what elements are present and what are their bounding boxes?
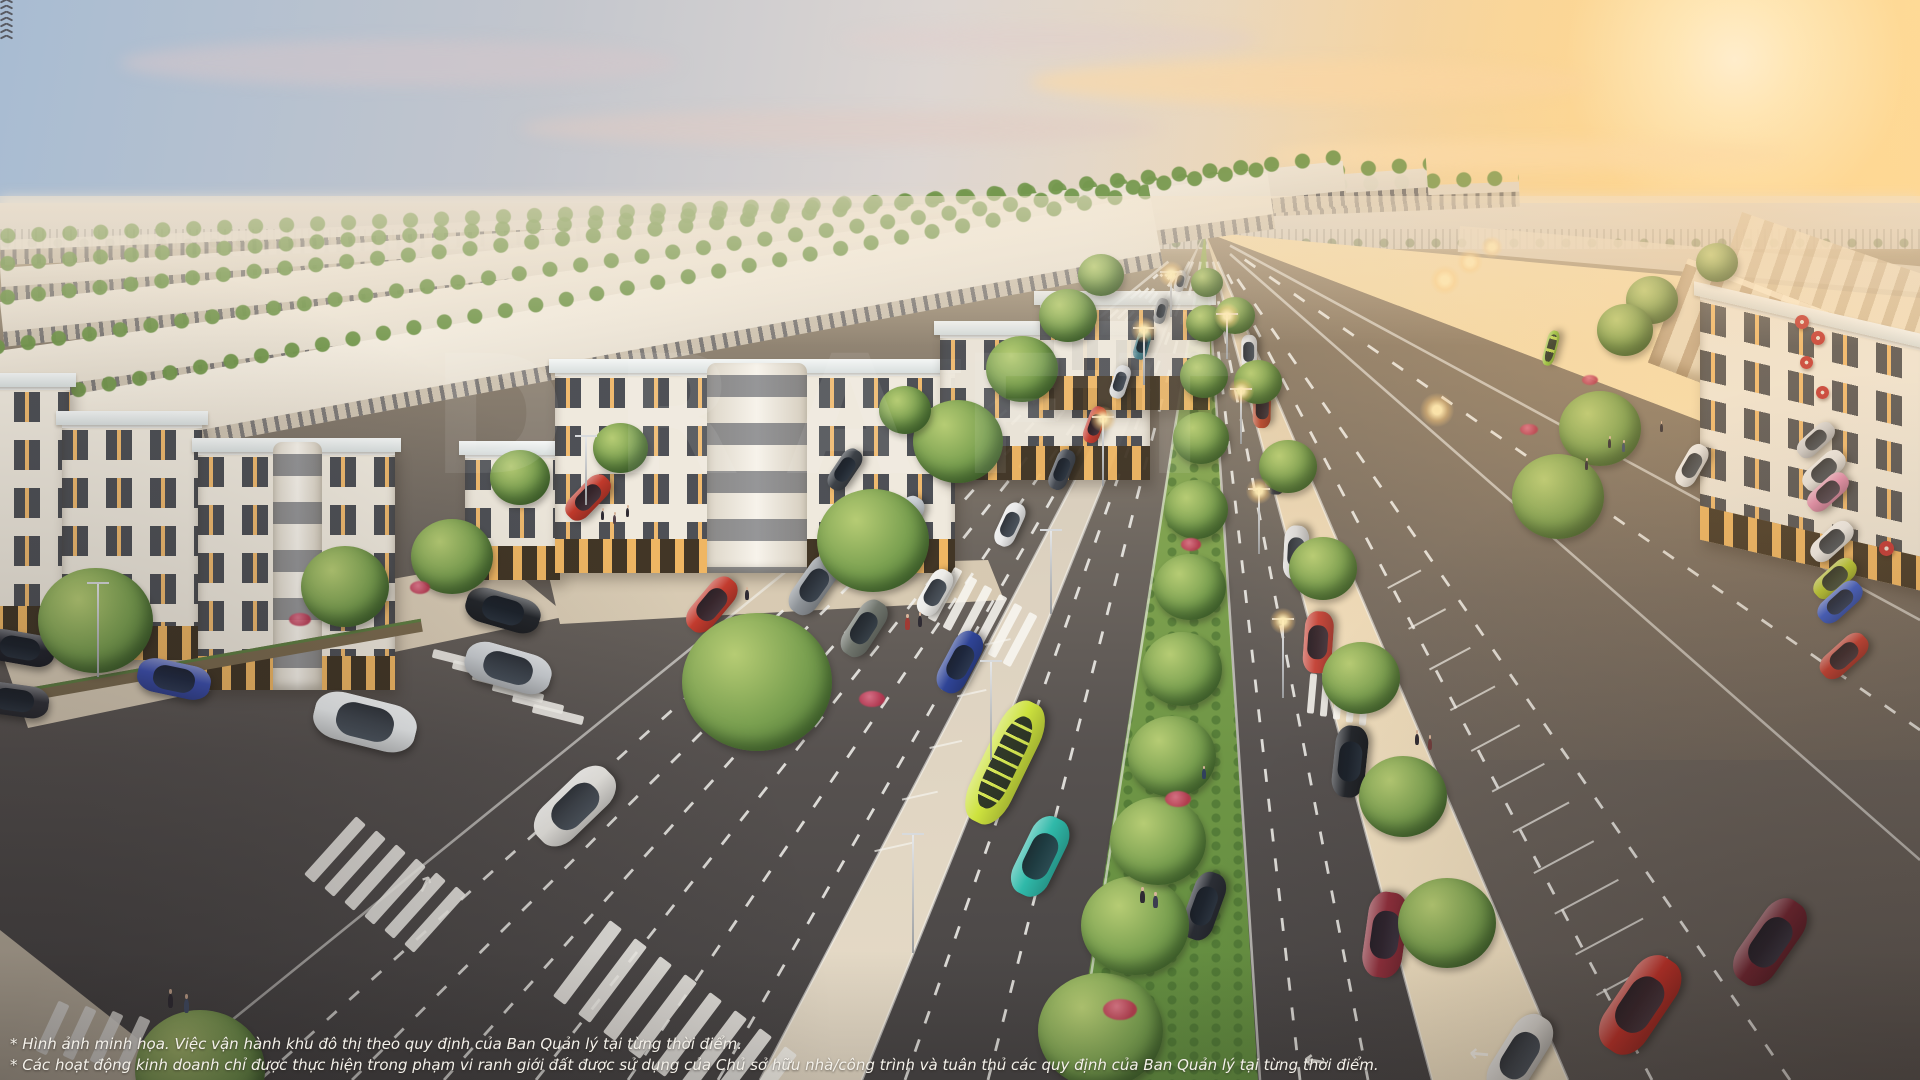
street-light — [912, 833, 914, 953]
bus — [956, 693, 1054, 831]
flower-bed — [1520, 424, 1538, 435]
car — [134, 655, 213, 704]
pedestrian — [1153, 896, 1158, 908]
pedestrian — [184, 999, 189, 1013]
vehicle-cabin — [1187, 884, 1222, 929]
tree — [1597, 304, 1653, 356]
lane-arrow: ↑ — [1467, 1043, 1493, 1065]
vehicle-cabin — [1307, 624, 1329, 660]
light-arm — [980, 660, 1002, 662]
lamp-glow — [1270, 608, 1296, 634]
vehicle-cabin — [479, 592, 527, 627]
suv — [309, 686, 421, 758]
umbrella — [1800, 356, 1813, 369]
pedestrian-head — [1623, 440, 1625, 443]
tree — [1191, 268, 1223, 297]
bird-wing — [6, 23, 13, 28]
flower-bed — [410, 581, 430, 593]
street-light — [97, 582, 99, 677]
pedestrian — [1140, 891, 1145, 903]
pedestrian-head — [1203, 766, 1205, 769]
pedestrian-head — [1609, 436, 1611, 439]
light-arm — [87, 582, 109, 584]
vehicle-cabin — [1155, 303, 1167, 319]
vehicle-cabin — [1494, 1027, 1545, 1080]
vehicle-cabin — [333, 699, 398, 746]
vehicle-cabin — [971, 711, 1039, 813]
lamp-glow — [1457, 249, 1483, 275]
car — [525, 757, 625, 855]
car — [1004, 810, 1076, 902]
tree — [1322, 642, 1400, 714]
pedestrian — [1660, 424, 1663, 432]
flower-bed — [289, 613, 311, 627]
vehicle-cabin — [998, 510, 1022, 540]
tree — [682, 613, 832, 751]
lamp-glow — [1430, 265, 1460, 295]
bird — [0, 36, 14, 42]
car — [1815, 628, 1874, 685]
vehicle-cabin — [545, 776, 605, 836]
pedestrian — [1428, 739, 1432, 750]
pedestrian — [918, 616, 922, 627]
car — [1479, 1007, 1562, 1080]
street-light — [1050, 529, 1052, 614]
bus — [1540, 329, 1561, 367]
scene-objects: ↑↑↑ — [0, 0, 1920, 1080]
umbrella — [1879, 541, 1894, 556]
lamp-glow — [1420, 393, 1454, 427]
tree — [1154, 554, 1226, 620]
light-arm — [1040, 529, 1062, 531]
pedestrian-head — [1154, 892, 1157, 896]
pedestrian — [168, 994, 173, 1008]
tree — [1128, 716, 1216, 797]
car — [0, 679, 51, 721]
pedestrian — [1415, 734, 1419, 745]
vehicle-cabin — [1742, 911, 1798, 973]
lamp-glow — [1481, 236, 1503, 258]
lamp-glow — [1158, 261, 1184, 287]
tree — [301, 546, 389, 627]
tree — [1110, 797, 1206, 885]
aerial-township-render: ↑↑↑ DRAFT * Hình ảnh minh họa. Việc vận … — [0, 0, 1920, 1080]
vehicle-cabin — [151, 663, 197, 695]
suv — [1724, 890, 1815, 994]
tree — [1696, 243, 1738, 282]
vehicle-cabin — [1802, 426, 1830, 453]
bird-wing — [6, 29, 13, 34]
crosswalk-stripe — [304, 816, 366, 883]
pedestrian — [905, 618, 910, 630]
bird-wing — [6, 11, 13, 16]
vehicle-cabin — [1609, 970, 1672, 1040]
umbrella — [1795, 315, 1809, 329]
disclaimer-line-2: * Các hoạt động kinh doanh chỉ được thực… — [10, 1055, 1379, 1076]
pedestrian-head — [919, 612, 921, 616]
pedestrian-head — [169, 989, 172, 994]
pedestrian-head — [906, 614, 909, 618]
street-light — [990, 660, 992, 760]
vehicle-cabin — [0, 686, 35, 714]
flower-bed — [1181, 538, 1201, 550]
bird-wing — [6, 0, 13, 3]
vehicle-cabin — [1018, 829, 1063, 883]
pedestrian-head — [185, 994, 188, 999]
vehicle-cabin — [0, 633, 41, 662]
bird-wing — [6, 5, 13, 10]
pedestrian — [745, 590, 749, 600]
disclaimer-line-1: * Hình ảnh minh họa. Việc vận hành khu đ… — [10, 1034, 1379, 1055]
pedestrian-head — [746, 587, 748, 590]
flower-bed — [1103, 999, 1137, 1020]
pedestrian-head — [1416, 730, 1418, 734]
pedestrian — [1202, 769, 1206, 779]
vehicle-cabin — [1544, 334, 1558, 362]
bird-wing — [6, 17, 13, 22]
umbrella — [1816, 386, 1829, 399]
vehicle-cabin — [1816, 526, 1848, 557]
bird-wing — [6, 35, 13, 40]
flower-bed — [1582, 375, 1598, 385]
vehicle-cabin — [1368, 909, 1402, 961]
suv — [1671, 441, 1712, 491]
light-arm — [902, 833, 924, 835]
umbrella — [1811, 331, 1825, 345]
pedestrian — [613, 515, 616, 524]
disclaimer-text: * Hình ảnh minh họa. Việc vận hành khu đ… — [10, 1034, 1379, 1076]
pedestrian — [601, 511, 604, 520]
draft-watermark: DRAFT — [430, 320, 1277, 512]
tree — [1512, 454, 1604, 539]
car — [1589, 946, 1691, 1063]
tree — [1078, 254, 1124, 296]
vehicle-cabin — [1336, 741, 1363, 784]
suv — [462, 583, 545, 638]
pedestrian-head — [614, 512, 616, 515]
tree — [1142, 632, 1222, 706]
vehicle-cabin — [1679, 451, 1705, 481]
pedestrian-head — [1586, 458, 1588, 461]
vehicle-cabin — [480, 648, 535, 689]
pedestrian-head — [1141, 887, 1144, 891]
vehicle-cabin — [942, 641, 978, 684]
pedestrian-head — [1429, 735, 1431, 739]
tree — [1081, 876, 1189, 975]
tree — [1398, 878, 1496, 968]
vehicle-cabin — [1826, 639, 1861, 673]
tree — [1359, 756, 1447, 837]
vehicle-cabin — [846, 608, 882, 648]
tree — [1289, 537, 1357, 600]
suv — [835, 594, 893, 662]
flower-bed — [859, 691, 885, 707]
crosswalk-stripe — [1307, 673, 1317, 713]
pedestrian-head — [1661, 421, 1663, 424]
